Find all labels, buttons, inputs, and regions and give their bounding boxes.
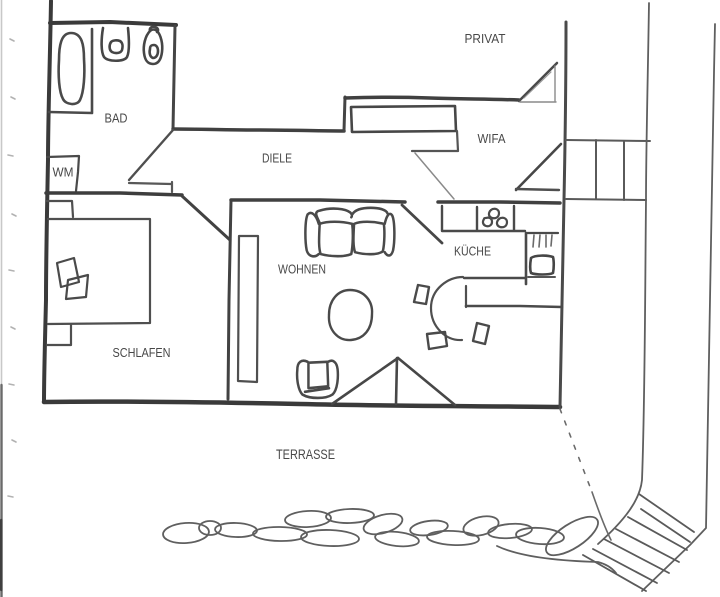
svg-text:WIFA: WIFA [478,131,506,146]
svg-text:WOHNEN: WOHNEN [278,262,326,277]
svg-text:SCHLAFEN: SCHLAFEN [113,345,171,360]
svg-text:PRIVAT: PRIVAT [465,31,506,46]
svg-text:WM: WM [53,166,74,180]
svg-text:TERRASSE: TERRASSE [276,447,335,462]
svg-text:KÜCHE: KÜCHE [454,244,491,259]
svg-text:BAD: BAD [105,111,128,126]
svg-text:DIELE: DIELE [262,151,292,166]
